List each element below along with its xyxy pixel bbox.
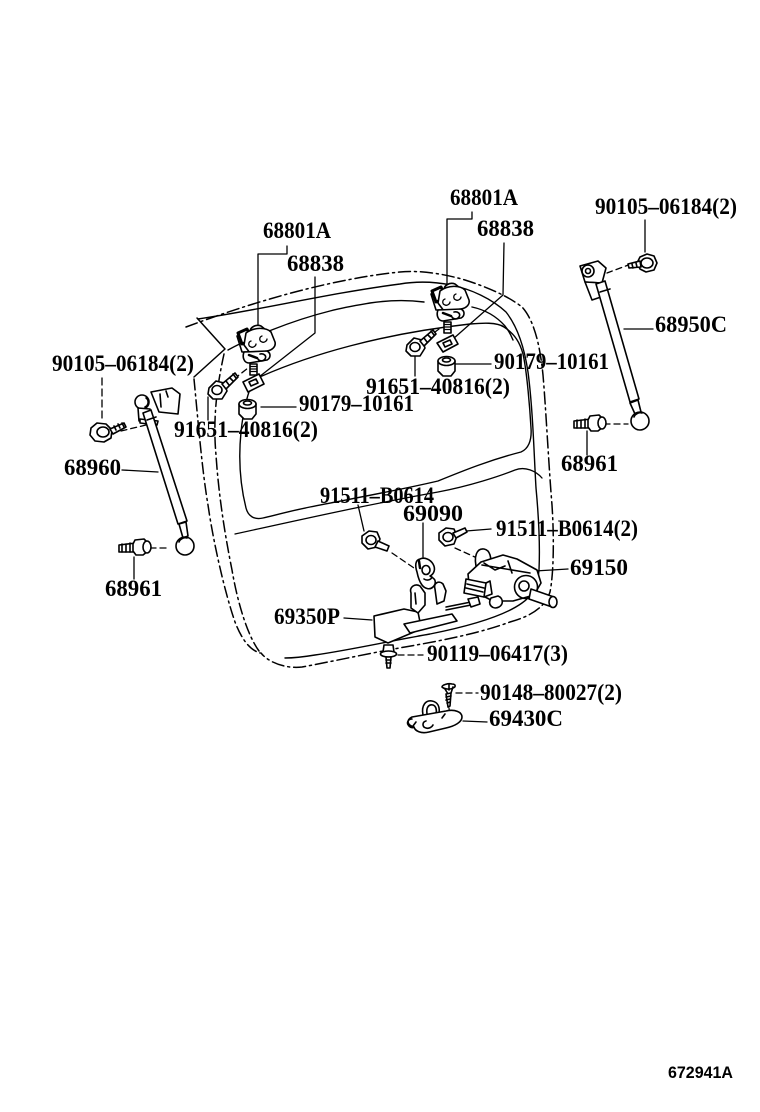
svg-text:90105–06184(2): 90105–06184(2) xyxy=(52,351,194,376)
svg-text:68801A: 68801A xyxy=(450,185,518,210)
svg-text:90148–80027(2): 90148–80027(2) xyxy=(480,680,622,705)
svg-text:68838: 68838 xyxy=(287,251,344,276)
svg-text:68961: 68961 xyxy=(105,576,162,601)
svg-text:69150: 69150 xyxy=(570,555,628,580)
svg-text:90179–10161: 90179–10161 xyxy=(494,349,609,374)
svg-text:69430C: 69430C xyxy=(489,706,563,731)
svg-text:91511–B0614(2): 91511–B0614(2) xyxy=(496,516,638,541)
svg-text:69350P: 69350P xyxy=(274,604,340,629)
svg-text:68801A: 68801A xyxy=(263,218,331,243)
svg-text:68838: 68838 xyxy=(477,216,534,241)
svg-text:68961: 68961 xyxy=(561,451,618,476)
svg-text:90119–06417(3): 90119–06417(3) xyxy=(427,641,568,666)
svg-text:68960: 68960 xyxy=(64,455,121,480)
svg-text:69090: 69090 xyxy=(403,501,463,526)
svg-text:90179–10161: 90179–10161 xyxy=(299,391,414,416)
svg-text:91651–40816(2): 91651–40816(2) xyxy=(174,417,318,442)
svg-text:90105–06184(2): 90105–06184(2) xyxy=(595,194,737,219)
svg-text:68950C: 68950C xyxy=(655,312,727,337)
svg-text:672941A: 672941A xyxy=(668,1063,733,1082)
